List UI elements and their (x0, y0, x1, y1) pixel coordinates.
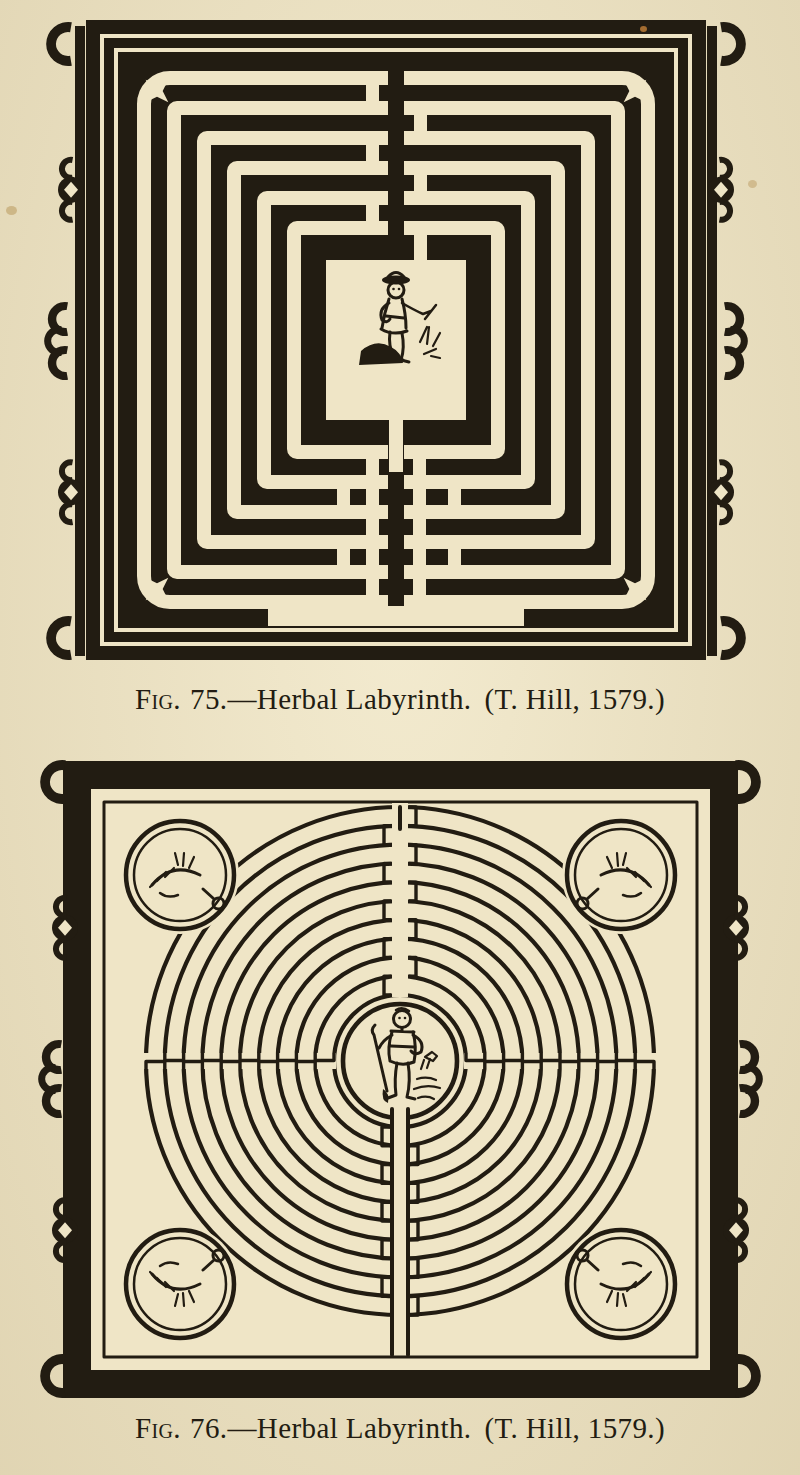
scroll-ornament-right (707, 22, 748, 660)
fig-number: 76. (190, 1412, 227, 1444)
fig-number: 75. (190, 683, 227, 715)
figure-76-woodcut (28, 757, 768, 1402)
figure-76-caption: Fig.76.—Herbal Labyrinth.(T. Hill, 1579.… (0, 1412, 800, 1445)
figure-75-woodcut (24, 10, 772, 672)
scroll-ornament-left (44, 22, 85, 660)
fig-source: (T. Hill, 1579.) (484, 683, 665, 715)
fig-source: (T. Hill, 1579.) (484, 1412, 665, 1444)
fig-label: Fig. (135, 683, 181, 715)
figure-75-caption: Fig.75.—Herbal Labyrinth.(T. Hill, 1579.… (0, 683, 800, 716)
fig-label: Fig. (135, 1412, 181, 1444)
scroll-ornament-left (38, 760, 79, 1398)
scroll-ornament-right (722, 760, 763, 1398)
fig-title: —Herbal Labyrinth. (227, 683, 471, 715)
paper-stain (6, 206, 17, 215)
book-page: Fig.75.—Herbal Labyrinth.(T. Hill, 1579.… (0, 0, 800, 1475)
fig-title: —Herbal Labyrinth. (227, 1412, 471, 1444)
